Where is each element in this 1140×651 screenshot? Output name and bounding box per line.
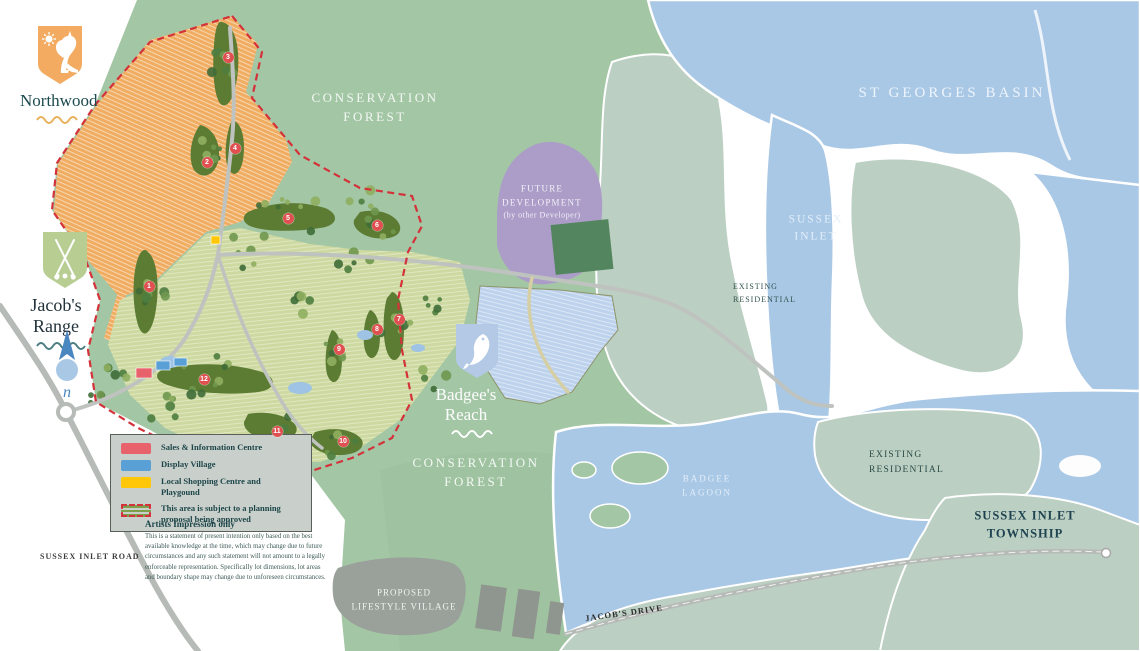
legend-item-display-village: Display Village [121, 459, 303, 471]
road-terminus-dot [1102, 549, 1111, 558]
northwood-wave-icon [35, 114, 85, 124]
dark-green-parcel [551, 219, 614, 275]
existing-residential-far-shore [850, 158, 1023, 373]
badgees-reach-wave-icon [450, 428, 502, 438]
golf-hole-marker-8: 8 [372, 324, 383, 335]
local-shopping-centre [211, 236, 220, 244]
golf-hole-marker-1: 1 [144, 281, 155, 292]
label-sussex-inlet-township: SUSSEX INLET TOWNSHIP [974, 508, 1075, 543]
badgees-reach-logo: Badgee's Reach [420, 322, 512, 443]
sales-information-centre [136, 368, 152, 378]
roundabout [58, 404, 74, 420]
golf-hole-marker-11: 11 [272, 426, 283, 437]
legend-item-sales: Sales & Information Centre [121, 442, 303, 454]
label-existing-residential-2: EXISTING RESIDENTIAL [869, 448, 944, 478]
legend-swatch-dashed [121, 504, 151, 517]
golf-hole-marker-6: 6 [372, 220, 383, 231]
legend-item-shopping: Local Shopping Centre and Playgound [121, 476, 303, 498]
map-legend: Sales & Information Centre Display Villa… [110, 434, 312, 532]
lagoon-islet [612, 452, 668, 484]
label-sussex-inlet-road: SUSSEX INLET ROAD [40, 551, 140, 563]
golf-hole-marker-7: 7 [394, 314, 405, 325]
jacobs-range-shield-icon [40, 230, 90, 290]
northwood-shield-icon [35, 24, 85, 86]
white-sand-pond [1059, 455, 1101, 477]
disclaimer: Artists Impression only This is a statem… [145, 519, 327, 583]
golf-hole-marker-9: 9 [334, 344, 345, 355]
label-existing-residential-1: EXISTING RESIDENTIAL [733, 281, 796, 307]
legend-label: Sales & Information Centre [161, 442, 291, 453]
north-letter: n [51, 384, 83, 402]
golf-hole-marker-5: 5 [283, 213, 294, 224]
display-village [174, 358, 187, 366]
label-sussex-inlet: SUSSEX INLET [789, 211, 844, 244]
label-st-georges-basin: ST GEORGES BASIN [859, 83, 1046, 105]
display-village [156, 361, 170, 370]
legend-label: Local Shopping Centre and Playgound [161, 476, 291, 498]
masterplan-map: Northwood Jacob's Range n [0, 0, 1140, 651]
badgees-reach-shield-icon [453, 322, 501, 380]
golf-hole-marker-12: 12 [199, 374, 210, 385]
label-future-development: FUTURE DEVELOPMENT (by other Developer) [502, 183, 582, 222]
lagoon-islet [572, 462, 596, 478]
northwood-logo: Northwood [20, 24, 90, 129]
badgees-reach-name: Badgee's Reach [420, 385, 512, 425]
disclaimer-body: This is a statement of present intention… [145, 532, 327, 583]
label-badgee-lagoon: BADGEE LAGOON [682, 472, 732, 501]
legend-swatch-red [121, 443, 151, 454]
label-conservation-forest-bottom: CONSERVATION FOREST [413, 454, 540, 492]
north-arrow: n [51, 330, 83, 402]
lagoon-islet [590, 504, 630, 528]
disclaimer-title: Artists Impression only [145, 519, 327, 529]
legend-swatch-blue [121, 460, 151, 471]
north-arrow-icon [54, 330, 80, 382]
label-conservation-forest-top: CONSERVATION FOREST [312, 89, 439, 127]
golf-hole-marker-3: 3 [223, 52, 234, 63]
legend-label: Display Village [161, 459, 291, 470]
golf-hole-marker-2: 2 [202, 157, 213, 168]
water-right-strip [1030, 172, 1140, 396]
northwood-name: Northwood [20, 91, 90, 111]
golf-hole-marker-4: 4 [230, 143, 241, 154]
golf-hole-marker-10: 10 [338, 436, 349, 447]
label-proposed-lifestyle-village: PROPOSED LIFESTYLE VILLAGE [351, 587, 456, 614]
legend-swatch-yellow [121, 477, 151, 488]
